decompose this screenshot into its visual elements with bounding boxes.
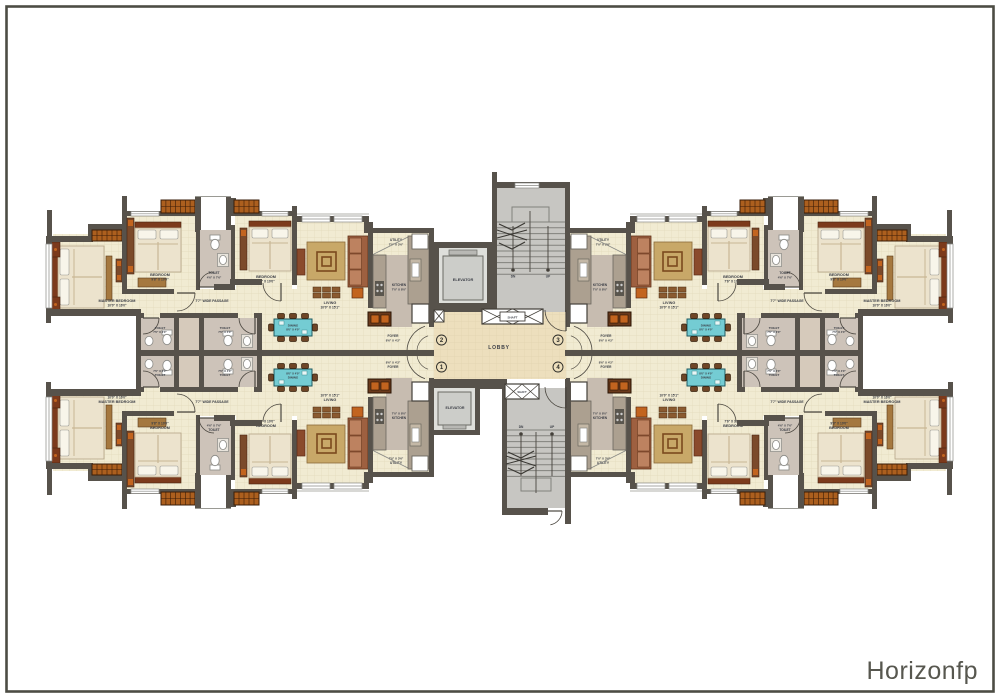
svg-text:BEDROOM: BEDROOM (829, 273, 849, 277)
svg-text:10'0" X 15'1": 10'0" X 15'1" (659, 394, 679, 398)
svg-text:8'0" X 4'0": 8'0" X 4'0" (699, 328, 713, 332)
svg-text:LIVING: LIVING (324, 398, 337, 402)
svg-text:Horizonfp: Horizonfp (867, 657, 979, 685)
svg-text:4'6" X 7'6": 4'6" X 7'6" (778, 276, 793, 280)
svg-text:LIVING: LIVING (663, 301, 676, 305)
svg-text:4'6" X 7'6": 4'6" X 7'6" (207, 424, 222, 428)
svg-text:7'0" X 4'0": 7'0" X 4'0" (153, 330, 167, 334)
svg-text:7'0" X 8'0": 7'0" X 8'0" (593, 412, 608, 416)
svg-text:7'0" X 4'0": 7'0" X 4'0" (832, 369, 846, 373)
svg-text:MASTER BEDROOM: MASTER BEDROOM (99, 299, 136, 303)
svg-text:7'0" X 3'6": 7'0" X 3'6" (596, 457, 611, 461)
svg-text:LIVING: LIVING (663, 398, 676, 402)
svg-text:4'6" X 7'6": 4'6" X 7'6" (778, 424, 793, 428)
svg-text:FOYER: FOYER (388, 334, 400, 338)
svg-text:10'0" X 16'0": 10'0" X 16'0" (872, 396, 892, 400)
svg-text:7'7" WIDE PASSAGE: 7'7" WIDE PASSAGE (770, 299, 804, 303)
svg-text:KITCHEN: KITCHEN (392, 283, 407, 287)
svg-text:DINING: DINING (288, 376, 299, 380)
svg-text:4'6" X 7'6": 4'6" X 7'6" (207, 276, 222, 280)
svg-text:FOYER: FOYER (388, 365, 400, 369)
svg-text:DN: DN (519, 425, 524, 429)
svg-text:8'6" X 4'2": 8'6" X 4'2" (386, 339, 401, 343)
svg-text:TOILET: TOILET (208, 271, 219, 275)
svg-text:9'8" X 10'0": 9'8" X 10'0" (830, 422, 848, 426)
svg-text:8'6" X 4'2": 8'6" X 4'2" (599, 339, 614, 343)
svg-text:BEDROOM: BEDROOM (829, 426, 849, 430)
svg-text:8'6" X 4'2": 8'6" X 4'2" (386, 361, 401, 365)
svg-text:8'0" X 4'0": 8'0" X 4'0" (699, 372, 713, 376)
svg-text:7'0" X 8'0": 7'0" X 8'0" (392, 288, 407, 292)
svg-text:BEDROOM: BEDROOM (723, 275, 743, 279)
svg-text:MASTER BEDROOM: MASTER BEDROOM (864, 400, 901, 404)
svg-text:ELEVATOR: ELEVATOR (453, 277, 474, 282)
svg-text:10'0" X 16'0": 10'0" X 16'0" (872, 304, 892, 308)
svg-text:TOILET: TOILET (220, 373, 231, 377)
svg-text:KITCHEN: KITCHEN (392, 416, 407, 420)
svg-text:7'0" X 4'0": 7'0" X 4'0" (767, 330, 781, 334)
svg-text:8'6" X 4'2": 8'6" X 4'2" (599, 361, 614, 365)
svg-text:UTILITY: UTILITY (390, 238, 403, 242)
svg-text:BEDROOM: BEDROOM (150, 273, 170, 277)
svg-text:DN: DN (511, 275, 516, 279)
svg-text:TOILET: TOILET (834, 373, 845, 377)
svg-text:10'0" X 15'1": 10'0" X 15'1" (320, 394, 340, 398)
svg-text:LOBBY: LOBBY (488, 345, 510, 351)
svg-text:7'7" WIDE PASSAGE: 7'7" WIDE PASSAGE (195, 299, 229, 303)
svg-text:10'0" X 15'1": 10'0" X 15'1" (320, 306, 340, 310)
svg-text:7'0" X 4'0": 7'0" X 4'0" (767, 369, 781, 373)
svg-text:9'8" X 10'0": 9'8" X 10'0" (151, 278, 169, 282)
svg-text:BEDROOM: BEDROOM (150, 426, 170, 430)
svg-text:10'0" X 15'1": 10'0" X 15'1" (659, 306, 679, 310)
svg-text:TOILET: TOILET (779, 271, 790, 275)
svg-text:TOILET: TOILET (155, 373, 166, 377)
svg-text:TOILET: TOILET (779, 428, 790, 432)
svg-text:ELEVATOR: ELEVATOR (446, 406, 465, 410)
svg-text:7'0" X 4'0": 7'0" X 4'0" (832, 330, 846, 334)
svg-text:FOYER: FOYER (601, 365, 613, 369)
svg-text:7'0" X 8'0": 7'0" X 8'0" (593, 288, 608, 292)
svg-text:9'8" X 10'0": 9'8" X 10'0" (830, 278, 848, 282)
svg-text:9'8" X 10'0": 9'8" X 10'0" (151, 422, 169, 426)
svg-text:KITCHEN: KITCHEN (593, 283, 608, 287)
svg-text:10'0" X 16'0": 10'0" X 16'0" (107, 304, 127, 308)
svg-text:8'0" X 4'0": 8'0" X 4'0" (286, 372, 300, 376)
svg-text:MASTER BEDROOM: MASTER BEDROOM (99, 400, 136, 404)
svg-text:SHAFT: SHAFT (508, 316, 518, 320)
svg-text:FOYER: FOYER (601, 334, 613, 338)
svg-text:7'0" X 8'0": 7'0" X 8'0" (392, 412, 407, 416)
svg-text:10'0" X 16'0": 10'0" X 16'0" (107, 396, 127, 400)
svg-text:7'0" X 4'0": 7'0" X 4'0" (218, 330, 232, 334)
svg-text:BEDROOM: BEDROOM (256, 275, 276, 279)
svg-text:8'0" X 4'0": 8'0" X 4'0" (286, 328, 300, 332)
svg-text:7'0" X 4'0": 7'0" X 4'0" (218, 369, 232, 373)
svg-text:DINING: DINING (701, 376, 712, 380)
svg-text:TOILET: TOILET (769, 373, 780, 377)
svg-text:LIVING: LIVING (324, 301, 337, 305)
svg-text:7'7" WIDE PASSAGE: 7'7" WIDE PASSAGE (770, 400, 804, 404)
svg-text:SHAFT: SHAFT (517, 390, 527, 394)
svg-text:7'0" X 4'0": 7'0" X 4'0" (153, 369, 167, 373)
svg-text:TOILET: TOILET (208, 428, 219, 432)
svg-text:MASTER BEDROOM: MASTER BEDROOM (864, 299, 901, 303)
svg-text:KITCHEN: KITCHEN (593, 416, 608, 420)
svg-text:7'7" WIDE PASSAGE: 7'7" WIDE PASSAGE (195, 400, 229, 404)
